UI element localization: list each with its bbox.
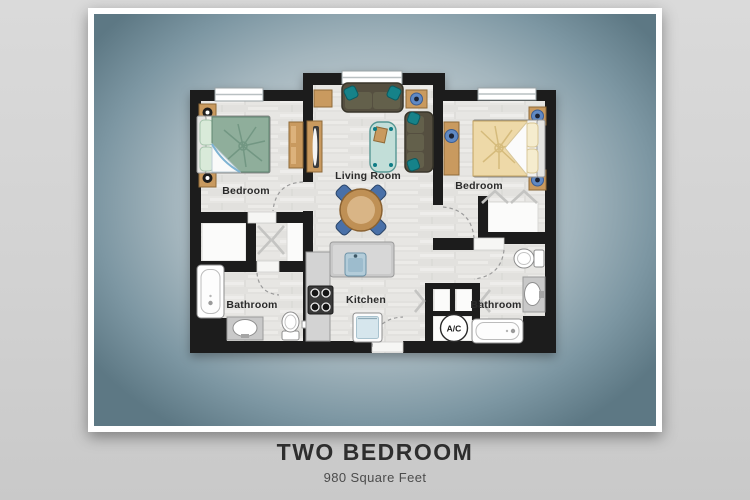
- plan-title: TWO BEDROOM: [0, 440, 750, 465]
- title-block: TWO BEDROOM 980 Square Feet: [0, 440, 750, 485]
- plan-subtitle: 980 Square Feet: [0, 470, 750, 485]
- floorplan-card: [88, 8, 662, 432]
- page: A/C Bedroom Living Room Bedroom Bathroom…: [0, 0, 750, 500]
